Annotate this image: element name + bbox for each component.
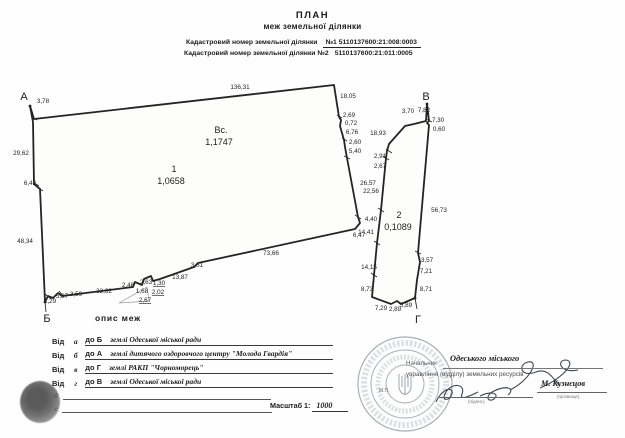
name-caption: (прізвище) — [557, 394, 580, 399]
dimension-label: 22,56 — [363, 188, 379, 195]
dimension-label: 2,46 — [122, 282, 135, 289]
dimension-label: 2,02 — [152, 289, 165, 296]
approver-org-line1: Одеського міського — [450, 354, 519, 363]
dimension-label: 8,73 — [361, 286, 374, 293]
point-label-b: Б — [43, 313, 50, 325]
boundary-row-empty: д — [54, 388, 271, 400]
boundary-row-point: в — [70, 365, 81, 374]
approver-name: М. Кузнєцов — [541, 379, 585, 388]
dimension-label: 5,87 — [56, 293, 69, 300]
dimension-label: 1,68 — [136, 288, 149, 295]
dimension-label: 6,42 — [24, 180, 37, 187]
dimension-label: 2,67 — [139, 297, 152, 304]
dimension-label: 0,72 — [345, 120, 358, 127]
boundary-row-empty: е — [54, 401, 272, 413]
dimension-label: 3,78 — [37, 98, 50, 105]
dimension-label: 26,57 — [360, 180, 376, 187]
dimension-label: 13,87 — [172, 274, 188, 281]
dimension-label: 7,30 — [432, 117, 445, 124]
point-label-a: А — [20, 91, 28, 103]
dimension-label: 2,63 — [140, 279, 153, 286]
parcel-2-number: 2 — [396, 210, 401, 220]
dimension-label: 2,91 — [374, 153, 387, 160]
boundary-row-to: до А — [85, 349, 102, 358]
boundary-row-text: землі дитячого оздоровчого центру "Молод… — [110, 349, 292, 358]
total-area-value: 1,1747 — [205, 137, 233, 147]
boundary-row: Від г до Вземлі Одеської міської ради — [52, 374, 333, 388]
dimension-label: 18,93 — [370, 130, 386, 137]
boundary-row-point: г — [70, 379, 81, 388]
dimension-label: 136,31 — [230, 84, 250, 91]
form-line — [443, 368, 603, 369]
dimension-label: 5,89 — [400, 302, 413, 309]
parcel-1-area: 1,0658 — [157, 176, 185, 186]
dimension-label: 14,15 — [361, 264, 377, 271]
boundary-row: Від б до Аземлі дитячого оздоровчого цен… — [52, 346, 333, 360]
dimension-label: 7,21 — [420, 268, 433, 275]
signature-caption: (підпис) — [468, 399, 485, 404]
boundary-row-text: землі Одеської міської ради — [110, 377, 201, 386]
dimension-label: 2,69 — [343, 112, 356, 119]
dimension-label: 7,29 — [375, 305, 388, 312]
dimension-label: 73,66 — [263, 250, 279, 257]
boundary-row-from-label: Від — [52, 337, 64, 346]
approver-org-line2: управління (відділу) земельних ресурсів — [406, 371, 524, 378]
dimension-label: 1,30 — [153, 280, 166, 287]
dimension-label: 29,62 — [13, 150, 29, 157]
land-plan-document: ПЛАН меж земельної ділянки Кадастровий н… — [0, 0, 625, 438]
boundary-row-from-label: Від — [52, 351, 64, 360]
boundary-row-to: до Б — [85, 335, 102, 344]
dimension-label: 0,60 — [433, 126, 446, 133]
dimension-label: 3,59 — [70, 291, 83, 298]
boundary-row: Від в до Гземлі РАКП "Чорноморець" — [52, 360, 333, 374]
scale-label: Масштаб 1: — [270, 401, 310, 410]
dimension-label: 32,62 — [96, 288, 112, 295]
blank-line — [63, 399, 271, 400]
form-line — [438, 397, 533, 398]
dimension-label: 14,41 — [358, 229, 374, 236]
dimension-label: 6,76 — [346, 129, 359, 136]
form-line — [537, 392, 607, 393]
survey-point-g — [414, 297, 417, 300]
seal-place-label: М.П. — [379, 388, 390, 394]
boundary-row-point: б — [70, 351, 81, 360]
scale-value: 1000 — [312, 401, 348, 412]
parcel-1-shape — [30, 85, 360, 302]
dimension-label: 3,57 — [421, 257, 434, 264]
boundary-row-to: до Г — [85, 363, 101, 372]
dimension-label: 18,05 — [340, 93, 356, 100]
boundary-row-from-label: Від — [52, 365, 64, 374]
boundary-row-text: землі Одеської міської ради — [110, 335, 201, 344]
parcel-2-area: 0,1089 — [384, 222, 412, 232]
scale-note: Масштаб 1: 1000 — [270, 401, 348, 410]
approver-position-prefix: Начальник — [406, 360, 437, 367]
survey-point-a — [29, 105, 32, 108]
dimension-label: 2,67 — [374, 163, 387, 170]
parcel-1-number: 1 — [171, 164, 176, 174]
dimension-label: 5,40 — [349, 148, 362, 155]
dimension-label: 8,71 — [420, 286, 433, 293]
dimension-label: 56,73 — [431, 207, 447, 214]
point-label-g: Г — [415, 314, 421, 326]
dimension-label: 3,61 — [191, 262, 204, 269]
dimension-label: 48,34 — [17, 238, 33, 245]
total-area-label: Вс. — [214, 125, 227, 135]
dimension-label: 1,29 — [44, 298, 57, 305]
blank-line — [62, 412, 272, 413]
boundary-row-to: до В — [85, 377, 102, 386]
boundary-row-text: землі РАКП "Чорноморець" — [109, 363, 204, 372]
dimension-label: 4,40 — [365, 216, 378, 223]
official-seal — [358, 337, 452, 431]
boundary-row-point: а — [70, 337, 81, 346]
dimension-label: 3,70 — [402, 108, 415, 115]
survey-point-v — [426, 103, 429, 106]
point-label-v: В — [422, 91, 429, 103]
boundary-description-title: опис меж — [95, 313, 141, 323]
dimension-label: 2,60 — [349, 139, 362, 146]
boundary-row: Від а до Бземлі Одеської міської ради — [52, 332, 333, 346]
round-stamp — [20, 381, 60, 423]
dimension-label: 7,82 — [418, 107, 431, 114]
